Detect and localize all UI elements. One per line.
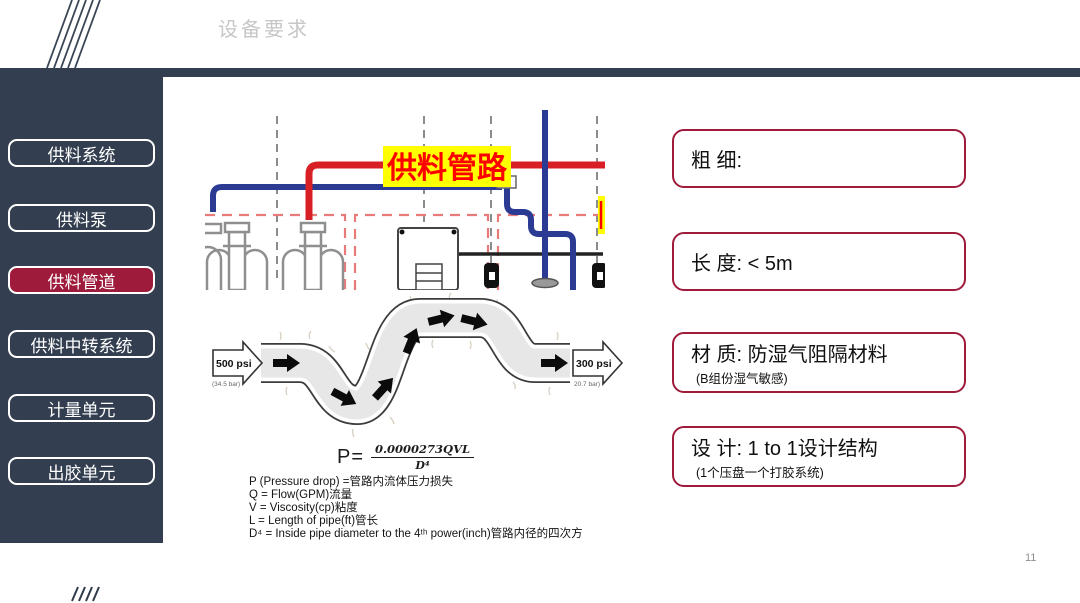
- spec-box-design: 设 计: 1 to 1设计结构 (1个压盘一个打胶系统): [672, 426, 966, 487]
- spec-box-thickness-label: 粗 细:: [691, 144, 964, 173]
- spec-box-thickness: 粗 细:: [672, 129, 966, 188]
- inlet-pressure-bar: (34.5 bar): [212, 381, 240, 388]
- tank-symbol: [398, 228, 458, 290]
- pump-symbols: [205, 223, 343, 290]
- pipe-base-plate: [532, 279, 558, 288]
- sidebar-item-feed-transfer-system[interactable]: 供料中转系统: [8, 330, 155, 358]
- spec-box-material-sub: (B组份湿气敏感): [691, 368, 964, 387]
- outlet-pressure-value: 300 psi: [576, 358, 612, 370]
- clipped-label-sliver: [598, 196, 605, 234]
- sidebar-item-dispensing-unit[interactable]: 出胶单元: [8, 457, 155, 485]
- legend-line-l: L = Length of pipe(ft)管长: [249, 515, 583, 528]
- pipe-label-text: 供料管路: [386, 152, 508, 185]
- formula-legend: P (Pressure drop) =管路内流体压力损失 Q = Flow(GP…: [249, 476, 583, 541]
- page-number: 11: [1025, 552, 1036, 564]
- black-pipe: [445, 254, 603, 290]
- pipe-label-highlight: 供料管路: [383, 146, 511, 187]
- spec-box-length-label: 长 度: < 5m: [691, 247, 964, 276]
- inlet-pressure-value: 500 psi: [216, 358, 252, 370]
- inlet-pressure-label: 500 psi (34.5 bar): [212, 342, 262, 388]
- slide: 设备要求 供料系统 供料泵 供料管道 供料中转系统 计量单元 出胶单元: [0, 0, 1080, 603]
- piping-schematic-image: 供料管路: [205, 108, 605, 290]
- sidebar-item-feed-pipe[interactable]: 供料管道: [8, 266, 155, 294]
- pressure-formula: P= 0.0000273QVL D⁴: [337, 442, 474, 472]
- sidebar-item-metering-unit[interactable]: 计量单元: [8, 394, 155, 422]
- spec-box-length: 长 度: < 5m: [672, 232, 966, 291]
- spec-box-design-label: 设 计: 1 to 1设计结构: [691, 432, 964, 461]
- spec-box-design-sub: (1个压盘一个打胶系统): [691, 462, 964, 481]
- sidebar-item-feed-system[interactable]: 供料系统: [8, 139, 155, 167]
- formula-denominator: D⁴: [371, 458, 474, 472]
- legend-line-q: Q = Flow(GPM)流量: [249, 489, 583, 502]
- legend-line-d: D⁴ = Inside pipe diameter to the 4ᵗʰ pow…: [249, 528, 583, 541]
- sidebar: 供料系统 供料泵 供料管道 供料中转系统 计量单元 出胶单元: [0, 68, 163, 543]
- spec-box-material: 材 质: 防湿气阻隔材料 (B组份湿气敏感): [672, 332, 966, 393]
- outlet-pressure-bar: 20.7 bar): [574, 381, 600, 388]
- outlet-pressure-label: 300 psi 20.7 bar): [573, 342, 622, 388]
- formula-fraction: 0.0000273QVL D⁴: [371, 442, 474, 472]
- formula-numerator: 0.0000273QVL: [371, 442, 474, 458]
- spec-box-material-label: 材 质: 防湿气阻隔材料: [691, 338, 964, 367]
- pressure-drop-diagram: 500 psi (34.5 bar) 300 psi 20.7 bar): [205, 292, 635, 442]
- legend-line-v: V = Viscosity(cp)粘度: [249, 502, 583, 515]
- page-title: 设备要求: [218, 13, 310, 42]
- legend-line-p: P (Pressure drop) =管路内流体压力损失: [249, 476, 583, 489]
- formula-lhs: P=: [337, 446, 364, 469]
- top-left-slashes-decoration: [40, 0, 102, 68]
- bottom-left-slashes-decoration: [70, 586, 104, 602]
- sidebar-item-feed-pump[interactable]: 供料泵: [8, 204, 155, 232]
